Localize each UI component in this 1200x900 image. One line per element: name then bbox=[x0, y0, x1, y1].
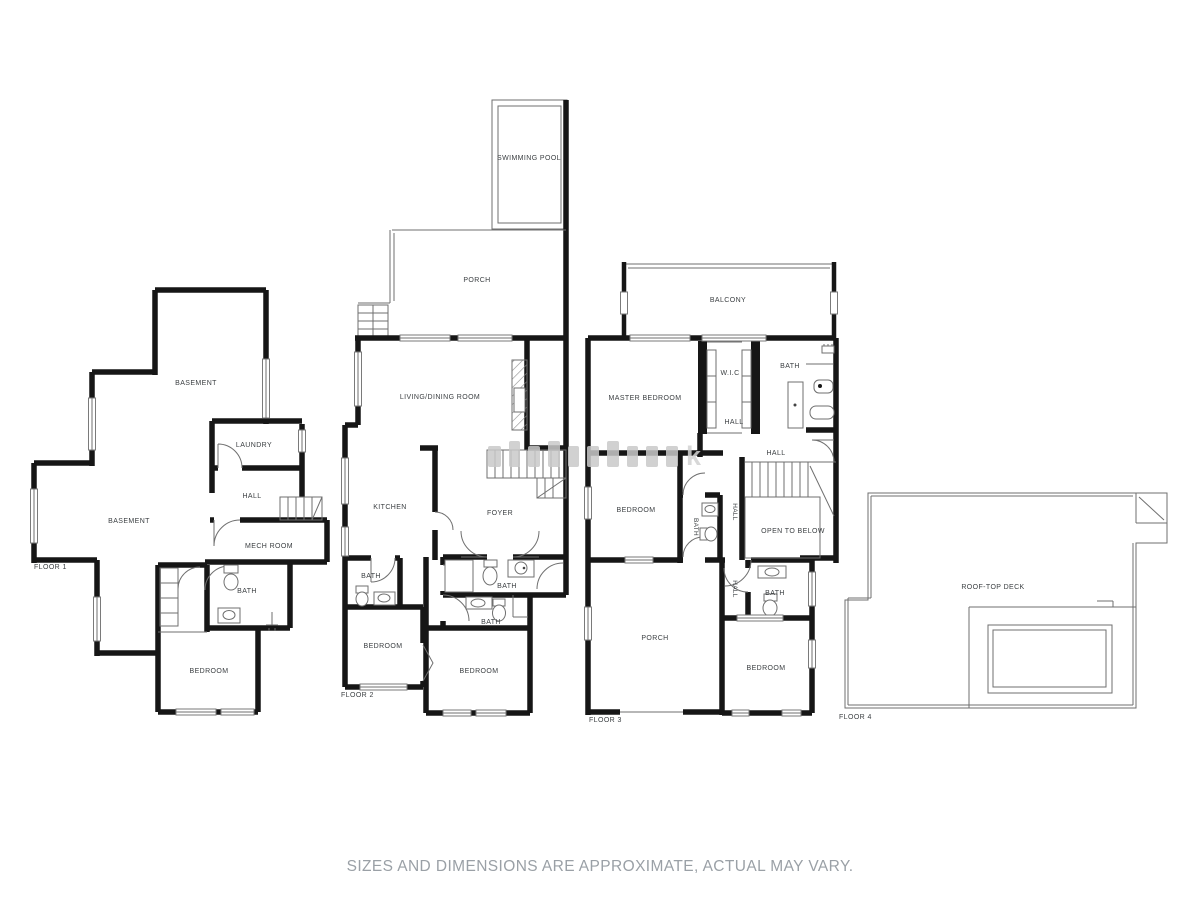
room-label-bath-master: BATH bbox=[780, 363, 800, 370]
room-label-bath-mid: BATH bbox=[481, 619, 501, 626]
room-label-hall: HALL bbox=[242, 493, 261, 500]
room-label-hall-small: HALL bbox=[731, 580, 738, 598]
room-label-bath-top: BATH bbox=[497, 583, 517, 590]
fireplace bbox=[512, 360, 527, 430]
room-label-bedroom-mid: BEDROOM bbox=[617, 507, 656, 514]
room-label-porch: PORCH bbox=[641, 635, 668, 642]
stairs bbox=[280, 497, 322, 520]
disclaimer-text: SIZES AND DIMENSIONS ARE APPROXIMATE, AC… bbox=[0, 858, 1200, 876]
room-label-bedroom-bottom: BEDROOM bbox=[747, 665, 786, 672]
floor-4-plan: ROOF-TOP DECK FLOOR 4 bbox=[839, 493, 1167, 721]
room-label-basement-upper: BASEMENT bbox=[175, 380, 217, 387]
foyer-stairs bbox=[487, 450, 566, 498]
porch-outline bbox=[358, 230, 566, 336]
closet bbox=[158, 568, 207, 632]
room-label-hall-vertical: HALL bbox=[731, 503, 738, 521]
floor-3-plan: BALCONY MASTER BEDROOM W.I.C BATH HALL H… bbox=[585, 262, 838, 724]
room-label-bath-left: BATH bbox=[361, 573, 381, 580]
stairs-open-below bbox=[745, 462, 836, 558]
room-label-kitchen: KITCHEN bbox=[373, 504, 407, 511]
swimming-pool bbox=[492, 100, 567, 229]
room-label-master-bedroom: MASTER BEDROOM bbox=[609, 395, 682, 402]
room-label-porch: PORCH bbox=[463, 277, 490, 284]
room-label-rooftop-deck: ROOF-TOP DECK bbox=[961, 584, 1024, 591]
floor-2-plan: SWIMMING POOL PORCH LIVING/DINING ROOM K… bbox=[341, 100, 567, 716]
bath-fixtures bbox=[218, 565, 278, 631]
room-label-mech-room: MECH ROOM bbox=[245, 543, 293, 550]
room-label-swimming-pool: SWIMMING POOL bbox=[497, 155, 561, 162]
room-label-basement-main: BASEMENT bbox=[108, 518, 150, 525]
room-label-balcony: BALCONY bbox=[710, 297, 746, 304]
room-label-laundry: LAUNDRY bbox=[236, 442, 272, 449]
floorplan-canvas: BASEMENT LAUNDRY HALL BASEMENT MECH ROOM… bbox=[0, 0, 1200, 900]
room-label-bath: BATH bbox=[237, 588, 257, 595]
room-label-bedroom: BEDROOM bbox=[190, 668, 229, 675]
room-label-living-dining: LIVING/DINING ROOM bbox=[400, 394, 480, 401]
room-label-foyer: FOYER bbox=[487, 510, 513, 517]
room-label-bedroom-left: BEDROOM bbox=[364, 643, 403, 650]
room-label-hall-upper: HALL bbox=[724, 419, 743, 426]
floorplan-page: BASEMENT LAUNDRY HALL BASEMENT MECH ROOM… bbox=[0, 0, 1200, 900]
floor-2-label: FLOOR 2 bbox=[341, 692, 374, 699]
bath-fixtures bbox=[356, 560, 534, 621]
floor-4-label: FLOOR 4 bbox=[839, 714, 872, 721]
room-label-open-to-below: OPEN TO BELOW bbox=[761, 528, 825, 535]
floor-1-plan: BASEMENT LAUNDRY HALL BASEMENT MECH ROOM… bbox=[31, 290, 328, 715]
room-label-bath-lower: BATH bbox=[765, 590, 785, 597]
floor-3-label: FLOOR 3 bbox=[589, 717, 622, 724]
room-label-wic: W.I.C bbox=[720, 370, 739, 377]
room-label-bath-mid: BATH bbox=[692, 518, 699, 536]
room-label-hall-right: HALL bbox=[766, 450, 785, 457]
floor-1-label: FLOOR 1 bbox=[34, 564, 67, 571]
room-label-bedroom-right: BEDROOM bbox=[460, 668, 499, 675]
windows bbox=[31, 359, 306, 715]
